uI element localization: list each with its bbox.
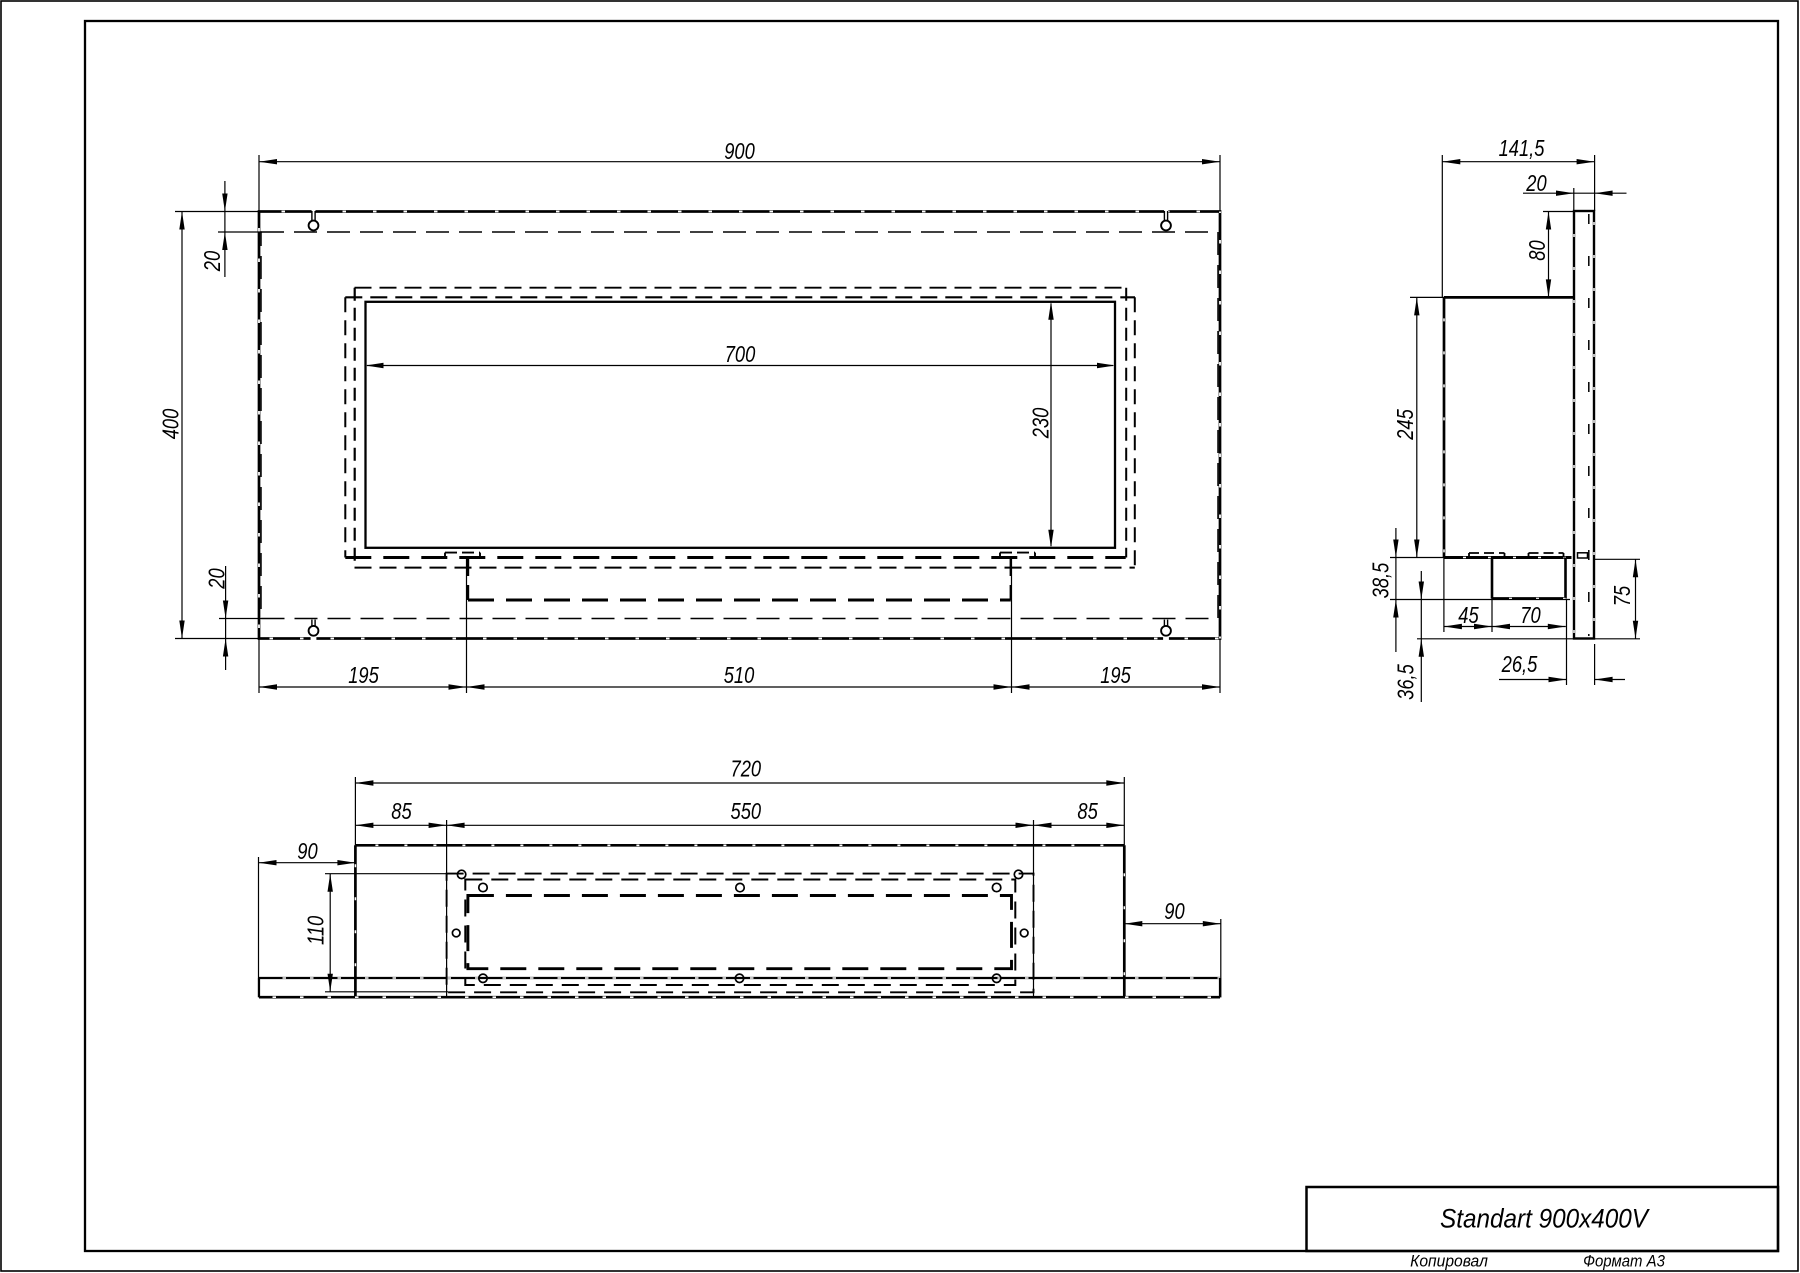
svg-text:110: 110 [304, 916, 330, 945]
svg-text:90: 90 [297, 839, 318, 865]
svg-text:85: 85 [391, 799, 412, 825]
svg-text:45: 45 [1458, 603, 1479, 629]
svg-text:245: 245 [1393, 409, 1419, 441]
svg-text:700: 700 [725, 342, 756, 368]
svg-text:70: 70 [1520, 603, 1541, 629]
svg-text:720: 720 [731, 757, 762, 783]
svg-text:38,5: 38,5 [1369, 562, 1395, 598]
svg-text:230: 230 [1029, 407, 1055, 439]
svg-text:400: 400 [159, 408, 185, 439]
svg-text:195: 195 [348, 663, 379, 689]
svg-text:510: 510 [724, 663, 755, 689]
svg-text:26,5: 26,5 [1501, 652, 1538, 678]
svg-text:Standart 900x400V: Standart 900x400V [1440, 1205, 1651, 1234]
svg-text:36,5: 36,5 [1394, 664, 1420, 700]
svg-text:20: 20 [1525, 171, 1546, 197]
svg-text:85: 85 [1077, 799, 1098, 825]
svg-text:20: 20 [200, 251, 226, 272]
svg-text:141,5: 141,5 [1499, 136, 1545, 162]
svg-text:900: 900 [724, 139, 755, 165]
svg-text:20: 20 [205, 568, 231, 589]
svg-text:75: 75 [1610, 586, 1636, 607]
svg-text:90: 90 [1164, 899, 1185, 925]
svg-text:195: 195 [1100, 663, 1131, 689]
svg-text:550: 550 [731, 799, 762, 825]
svg-text:Копировал: Копировал [1410, 1252, 1488, 1271]
svg-text:80: 80 [1525, 240, 1551, 261]
svg-text:Формат А3: Формат А3 [1583, 1253, 1665, 1271]
